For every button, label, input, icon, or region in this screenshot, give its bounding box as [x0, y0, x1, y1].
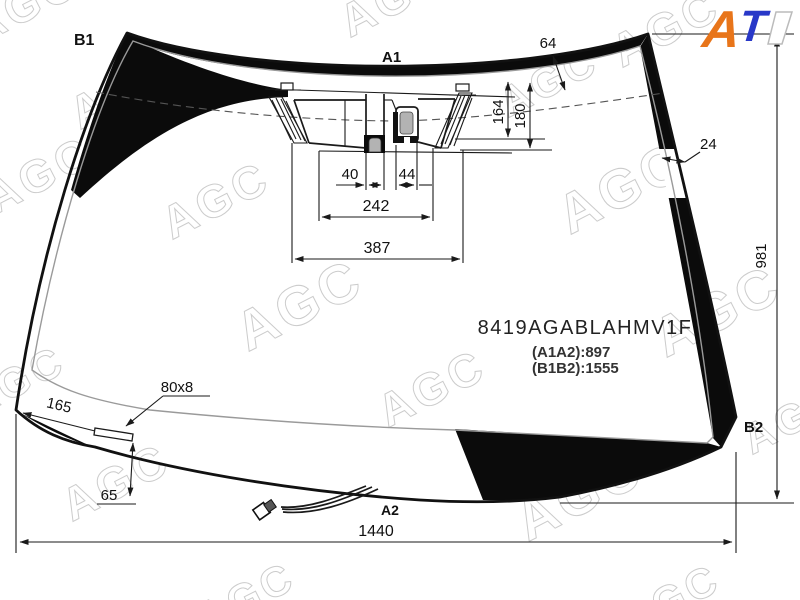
dim-text-1440: 1440	[358, 523, 394, 540]
label-a1: A1	[382, 49, 401, 66]
part-dim-a1a2: (A1A2):897	[532, 344, 610, 361]
camera-left-bar	[393, 112, 398, 140]
glass-frit-band	[16, 33, 736, 500]
dim-text-981: 981	[753, 243, 770, 268]
dim-text-44: 44	[399, 166, 416, 183]
windshield-diagram: AGC AGC AGC AGC AGC AGC AGC AGC AGC AGC …	[0, 0, 800, 600]
agc-watermark: AGC	[53, 433, 178, 531]
windshield-diagram-page: AGC AGC AGC AGC AGC AGC AGC AGC AGC AGC …	[0, 0, 800, 600]
dim-text-64: 64	[540, 35, 557, 52]
dim-bracket-inner-width: 242	[322, 198, 430, 217]
bracket-top-line	[265, 89, 515, 97]
dim-text-242: 242	[363, 198, 390, 215]
frit-bottom-left-wedge	[16, 410, 93, 447]
clip-right	[456, 84, 469, 91]
part-dim-b1b2: (B1B2):1555	[532, 360, 619, 377]
dim-text-164: 164	[490, 99, 507, 124]
dim-text-165: 165	[45, 395, 73, 417]
at-logo: A T	[698, 1, 792, 59]
wire-1	[281, 486, 366, 507]
agc-watermark: AGC	[331, 0, 456, 47]
agc-watermark: AGC	[225, 247, 373, 363]
dim-text-65: 65	[101, 487, 118, 504]
sticker-rect	[94, 428, 133, 441]
dim-slot-width: 40	[336, 166, 381, 185]
frit-right-band	[640, 34, 736, 447]
at-logo-outline-stroke	[768, 12, 792, 44]
wire-connector	[253, 498, 277, 520]
camera-housing	[384, 100, 418, 143]
dim-bracket-outer-width: 387	[295, 240, 460, 259]
dim-text-387: 387	[364, 240, 391, 257]
at-logo-letter-t: T	[737, 2, 773, 51]
dim-camera-width: 44	[399, 166, 432, 185]
agc-watermark: AGC	[188, 552, 303, 600]
agc-watermark: AGC	[613, 554, 728, 600]
agc-watermark: AGC	[369, 339, 494, 437]
dim-text-40: 40	[342, 166, 359, 183]
camera-bottom-notch	[404, 137, 410, 143]
label-a2: A2	[381, 502, 399, 518]
label-b2: B2	[744, 419, 763, 436]
dim-text-180: 180	[512, 103, 529, 128]
mirror-slot	[364, 94, 385, 153]
part-code: 8419AGABLAHMV1F	[478, 317, 693, 339]
clip-left	[281, 83, 293, 90]
agc-watermark: AGC	[153, 151, 278, 249]
dim-text-24: 24	[700, 136, 717, 153]
label-b1: B1	[74, 32, 95, 49]
dim-text-80x8: 80x8	[161, 379, 194, 396]
mirror-button	[369, 138, 381, 152]
camera-lens-body	[400, 112, 413, 134]
